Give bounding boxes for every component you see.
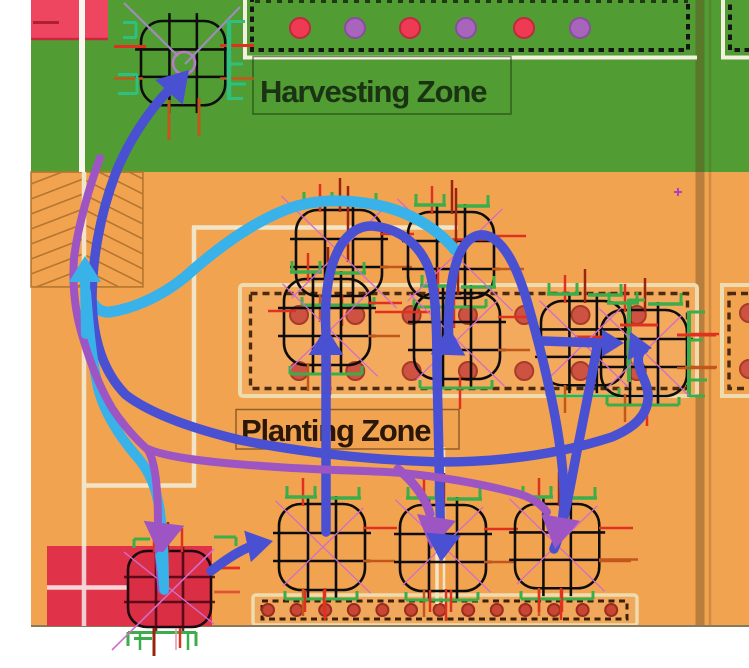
svg-text:Harvesting Zone: Harvesting Zone bbox=[260, 74, 487, 109]
